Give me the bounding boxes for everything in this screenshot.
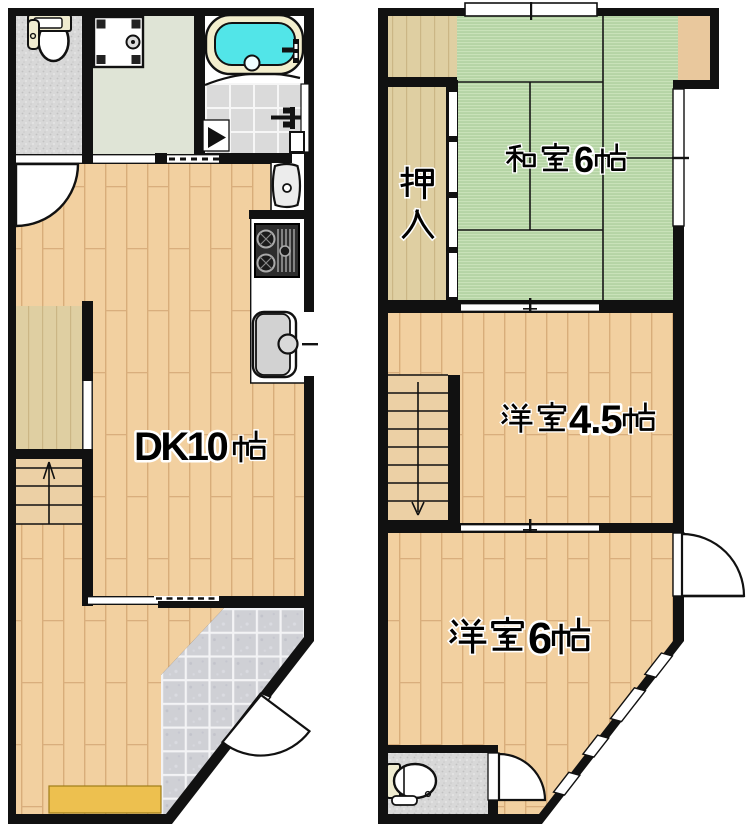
svg-text:6: 6 xyxy=(528,614,552,663)
svg-text:6: 6 xyxy=(574,139,594,180)
svg-text:DK10: DK10 xyxy=(134,425,228,469)
svg-text:4.5: 4.5 xyxy=(569,398,622,442)
